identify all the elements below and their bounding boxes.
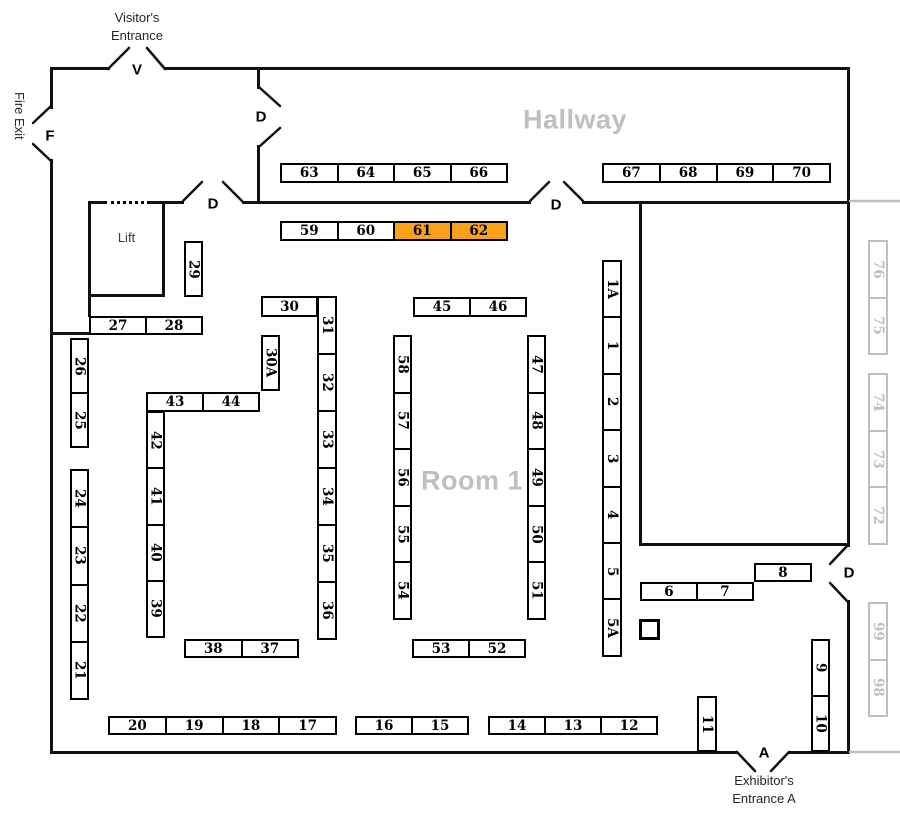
booth-6[interactable]: 6	[642, 584, 696, 599]
booth-69[interactable]: 69	[716, 165, 773, 181]
booth-label: 50	[529, 525, 544, 544]
hallway-label: Hallway	[523, 105, 627, 136]
booth-30[interactable]: 30	[263, 298, 316, 315]
booth-group: 30	[261, 296, 318, 317]
booth-label: 31	[319, 316, 335, 335]
booth-5a[interactable]: 5A	[604, 598, 620, 654]
booth-39[interactable]: 39	[148, 580, 163, 636]
booth-36[interactable]: 36	[319, 581, 335, 638]
booth-label: 21	[72, 661, 87, 680]
booth-66[interactable]: 66	[450, 165, 507, 181]
booth-17[interactable]: 17	[278, 718, 335, 733]
door-swing-mark	[564, 182, 583, 201]
booth-label: 64	[356, 165, 375, 181]
booth-group: 24232221	[70, 469, 89, 700]
booth-label: 19	[185, 718, 204, 733]
booth-65[interactable]: 65	[393, 165, 450, 181]
marker-f: F	[45, 128, 54, 145]
booth-12[interactable]: 12	[600, 718, 656, 733]
booth-54[interactable]: 54	[395, 561, 410, 618]
booth-67[interactable]: 67	[604, 165, 659, 181]
booth-label: 40	[148, 543, 163, 562]
wall-top-left	[50, 67, 110, 70]
booth-label: 32	[319, 373, 335, 392]
booth-label: 29	[186, 260, 201, 279]
booth-57[interactable]: 57	[395, 392, 410, 449]
booth-label: 15	[431, 718, 450, 733]
booth-37[interactable]: 37	[241, 641, 298, 656]
door-swing-mark	[147, 48, 165, 69]
visitor-entrance-caption: Visitor's Entrance	[92, 9, 182, 45]
booth-label: 24	[72, 489, 87, 508]
wall-left-stub	[50, 332, 91, 335]
booth-label: 73	[870, 450, 886, 469]
booth-label: 58	[395, 355, 410, 374]
booth-22[interactable]: 22	[72, 584, 87, 641]
booth-1[interactable]: 1	[604, 316, 620, 372]
booth-label: 47	[529, 355, 544, 374]
booth-4[interactable]: 4	[604, 486, 620, 542]
booth-group: 1A123455A	[602, 260, 622, 657]
booth-group: 29	[184, 241, 203, 297]
booth-98[interactable]: 98	[870, 659, 886, 716]
wall-right-upper	[847, 67, 850, 547]
marker-v: V	[132, 62, 142, 79]
wall-hallway-right	[582, 201, 848, 204]
booth-52[interactable]: 52	[468, 641, 524, 656]
booth-42[interactable]: 42	[148, 413, 163, 467]
door-swing-mark	[771, 752, 789, 771]
booth-74[interactable]: 74	[870, 375, 886, 430]
booth-label: 63	[300, 165, 319, 181]
booth-group: 9998	[868, 602, 888, 717]
booth-46[interactable]: 46	[469, 299, 525, 315]
booth-8[interactable]: 8	[756, 565, 810, 580]
booth-44[interactable]: 44	[202, 394, 258, 410]
booth-label: 75	[870, 316, 886, 335]
booth-99[interactable]: 99	[870, 604, 886, 659]
booth-61[interactable]: 61	[393, 223, 450, 239]
booth-label: 69	[735, 165, 754, 181]
booth-label: 1	[604, 341, 620, 350]
booth-group: 910	[811, 639, 830, 752]
booth-group: 59606162	[280, 221, 508, 241]
wall-hallway-left	[242, 201, 531, 204]
booth-label: 23	[72, 546, 87, 565]
booth-48[interactable]: 48	[529, 392, 544, 449]
door-swing-mark	[108, 48, 129, 69]
booth-group: 3837	[184, 639, 299, 658]
door-swing-mark	[737, 752, 755, 771]
booth-50[interactable]: 50	[529, 505, 544, 562]
booth-label: 25	[72, 411, 87, 430]
booth-group: 2625	[70, 338, 89, 448]
booth-label: 1A	[604, 279, 620, 299]
booth-label: 16	[375, 718, 394, 733]
booth-label: 68	[679, 165, 698, 181]
booth-label: 52	[488, 641, 507, 656]
lift-door-dotted	[104, 201, 150, 204]
booth-1a[interactable]: 1A	[604, 262, 620, 316]
booth-group: 63646566	[280, 163, 508, 183]
wall-vestibule-lower	[257, 145, 260, 204]
wall-room2-left	[639, 201, 642, 546]
booth-group: 747372	[868, 373, 888, 545]
booth-49[interactable]: 49	[529, 448, 544, 505]
booth-label: 12	[620, 718, 639, 733]
door-swing-mark	[183, 182, 202, 201]
marker-d: D	[551, 197, 562, 214]
booth-15[interactable]: 15	[411, 718, 467, 733]
booth-label: 8	[778, 565, 787, 580]
booth-19[interactable]: 19	[165, 718, 222, 733]
booth-group: 11	[697, 696, 717, 752]
booth-64[interactable]: 64	[337, 165, 394, 181]
booth-16[interactable]: 16	[357, 718, 411, 733]
booth-72[interactable]: 72	[870, 486, 886, 543]
booth-group: 67686970	[602, 163, 831, 183]
booth-9[interactable]: 9	[813, 641, 828, 695]
booth-27[interactable]: 27	[91, 318, 145, 333]
booth-75[interactable]: 75	[870, 297, 886, 354]
booth-group: 2728	[89, 316, 203, 335]
booth-label: 2	[604, 397, 620, 406]
booth-label: 54	[395, 581, 410, 600]
booth-label: 14	[508, 718, 527, 733]
booth-68[interactable]: 68	[659, 165, 716, 181]
booth-label: 67	[622, 165, 641, 181]
booth-label: 62	[469, 223, 488, 239]
booth-label: 7	[720, 584, 729, 599]
booth-55[interactable]: 55	[395, 505, 410, 562]
booth-label: 57	[395, 411, 410, 430]
booth-24[interactable]: 24	[72, 471, 87, 526]
booth-53[interactable]: 53	[414, 641, 468, 656]
booth-31[interactable]: 31	[319, 298, 335, 353]
booth-label: 18	[241, 718, 260, 733]
booth-label: 65	[413, 165, 432, 181]
booth-34[interactable]: 34	[319, 467, 335, 524]
booth-51[interactable]: 51	[529, 561, 544, 618]
booth-3[interactable]: 3	[604, 429, 620, 485]
booth-label: 42	[148, 431, 163, 450]
door-swing-mark	[223, 182, 242, 201]
booth-group: 4344	[146, 392, 260, 412]
booth-58[interactable]: 58	[395, 337, 410, 392]
booth-25[interactable]: 25	[72, 392, 87, 446]
floor-plan: Lift Hallway Room 1 Visitor's Entrance E…	[0, 0, 900, 822]
booth-label: 49	[529, 468, 544, 487]
door-swing-mark	[530, 182, 549, 201]
wall-right-lower	[847, 600, 850, 754]
booth-62[interactable]: 62	[450, 223, 507, 239]
booth-2[interactable]: 2	[604, 373, 620, 429]
booth-47[interactable]: 47	[529, 337, 544, 392]
booth-label: 30A	[263, 348, 278, 377]
booth-56[interactable]: 56	[395, 448, 410, 505]
marker-d: D	[844, 565, 855, 582]
booth-label: 5	[604, 567, 620, 576]
booth-13[interactable]: 13	[544, 718, 600, 733]
booth-label: 51	[529, 581, 544, 600]
booth-label: 39	[148, 599, 163, 618]
booth-label: 48	[529, 411, 544, 430]
booth-group: 5857565554	[393, 335, 412, 620]
booth-group: 20191817	[108, 716, 337, 735]
booth-label: 44	[222, 394, 241, 410]
booth-label: 36	[319, 601, 335, 620]
booth-30a[interactable]: 30A	[263, 337, 278, 389]
booth-40[interactable]: 40	[148, 524, 163, 580]
wall-top-main	[164, 67, 850, 70]
booth-26[interactable]: 26	[72, 340, 87, 392]
booth-group: 8	[754, 563, 812, 582]
booth-14[interactable]: 14	[490, 718, 544, 733]
booth-70[interactable]: 70	[772, 165, 829, 181]
booth-33[interactable]: 33	[319, 410, 335, 467]
booth-label: 66	[469, 165, 488, 181]
booth-45[interactable]: 45	[415, 299, 469, 315]
booth-group: 5352	[412, 639, 526, 658]
booth-41[interactable]: 41	[148, 467, 163, 523]
booth-43[interactable]: 43	[148, 394, 202, 410]
booth-label: 3	[604, 454, 620, 463]
booth-label: 28	[165, 318, 184, 333]
booth-group: 42414039	[146, 411, 165, 638]
door-swing-mark	[33, 107, 50, 123]
booth-7[interactable]: 7	[696, 584, 752, 599]
door-marks-layer	[0, 0, 900, 822]
pillar	[639, 619, 660, 640]
booth-label: 22	[72, 604, 87, 623]
booth-label: 34	[319, 487, 335, 506]
booth-label: 76	[870, 260, 886, 279]
booth-73[interactable]: 73	[870, 430, 886, 487]
booth-label: 43	[166, 394, 185, 410]
wall-left-upper	[50, 67, 53, 109]
booth-label: 33	[319, 430, 335, 449]
booth-label: 74	[870, 393, 886, 412]
booth-label: 27	[109, 318, 128, 333]
booth-group: 4748495051	[527, 335, 546, 620]
door-swing-mark	[260, 88, 280, 106]
wall-left-lower	[50, 159, 53, 754]
marker-a: A	[759, 745, 770, 762]
booth-label: 61	[413, 223, 432, 239]
booth-label: 99	[870, 622, 886, 641]
booth-label: 17	[298, 718, 317, 733]
booth-60[interactable]: 60	[337, 223, 394, 239]
booth-label: 26	[72, 357, 87, 376]
booth-label: 10	[813, 714, 828, 733]
booth-23[interactable]: 23	[72, 526, 87, 583]
booth-group: 30A	[261, 335, 280, 391]
wall-lift-below	[88, 297, 91, 317]
booth-59[interactable]: 59	[282, 223, 337, 239]
marker-d: D	[208, 196, 219, 213]
booth-label: 11	[699, 715, 715, 734]
door-swing-mark	[830, 546, 847, 564]
room1-label: Room 1	[421, 466, 523, 497]
booth-label: 45	[433, 299, 452, 315]
booth-label: 9	[813, 663, 828, 672]
booth-group: 1615	[355, 716, 469, 735]
booth-label: 30	[280, 299, 299, 315]
wall-vestibule-upper	[257, 67, 260, 89]
booth-label: 59	[300, 223, 319, 239]
booth-28[interactable]: 28	[145, 318, 201, 333]
booth-35[interactable]: 35	[319, 524, 335, 581]
booth-label: 4	[604, 510, 620, 519]
booth-label: 13	[564, 718, 583, 733]
booth-label: 6	[664, 584, 673, 599]
booth-32[interactable]: 32	[319, 353, 335, 410]
booth-29[interactable]: 29	[186, 243, 201, 295]
booth-20[interactable]: 20	[110, 718, 165, 733]
marker-d: D	[256, 109, 267, 126]
booth-group: 67	[640, 582, 754, 601]
booth-38[interactable]: 38	[186, 641, 241, 656]
booth-10[interactable]: 10	[813, 695, 828, 751]
exhibitor-entrance-caption: Exhibitor's Entrance A	[714, 772, 814, 808]
booth-group: 141312	[488, 716, 658, 735]
booth-group: 313233343536	[317, 296, 337, 640]
booth-21[interactable]: 21	[72, 641, 87, 698]
door-swing-mark	[260, 128, 280, 146]
booth-label: 56	[395, 468, 410, 487]
booth-label: 72	[870, 506, 886, 525]
booth-label: 35	[319, 544, 335, 563]
lift-label: Lift	[118, 230, 135, 245]
door-swing-mark	[33, 144, 50, 160]
booth-label: 53	[432, 641, 451, 656]
fire-exit-caption: Fire Exit	[12, 92, 27, 182]
booth-5[interactable]: 5	[604, 542, 620, 598]
wall-room2-bottom	[639, 543, 850, 546]
booth-label: 60	[356, 223, 375, 239]
booth-label: 20	[128, 718, 147, 733]
booth-18[interactable]: 18	[222, 718, 279, 733]
booth-label: 5A	[604, 618, 620, 638]
wall-lift-right	[165, 201, 184, 204]
booth-label: 98	[870, 678, 886, 697]
booth-label: 37	[260, 641, 279, 656]
booth-label: 55	[395, 525, 410, 544]
lift-room: Lift	[88, 201, 165, 297]
booth-label: 38	[204, 641, 223, 656]
booth-76[interactable]: 76	[870, 242, 886, 297]
booth-63[interactable]: 63	[282, 165, 337, 181]
door-swing-mark	[830, 583, 847, 601]
booth-group: 4546	[413, 297, 527, 317]
booth-group: 7675	[868, 240, 888, 355]
booth-label: 41	[148, 487, 163, 506]
booth-label: 70	[792, 165, 811, 181]
booth-11[interactable]: 11	[699, 698, 715, 750]
booth-label: 46	[489, 299, 508, 315]
wall-bottom-left	[50, 751, 738, 754]
